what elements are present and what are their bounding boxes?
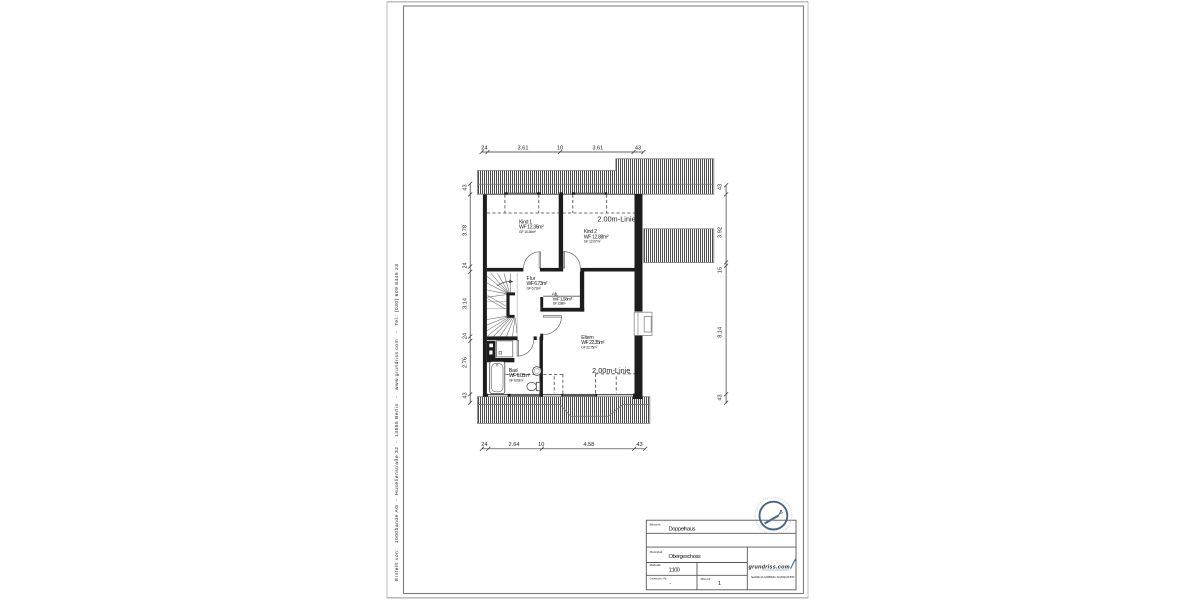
svg-text:GF 12.07m²: GF 12.07m² bbox=[584, 240, 602, 244]
svg-text:3.14: 3.14 bbox=[462, 298, 468, 309]
svg-text:3.92: 3.92 bbox=[717, 227, 723, 238]
svg-text:10: 10 bbox=[538, 442, 544, 448]
svg-text:43: 43 bbox=[462, 184, 468, 190]
svg-text:4.58: 4.58 bbox=[583, 442, 594, 448]
svg-text:43: 43 bbox=[717, 394, 723, 400]
svg-text:43: 43 bbox=[462, 392, 468, 398]
svg-text:3.61: 3.61 bbox=[518, 145, 529, 151]
svg-text:Erstellt von: 1000bande AG: Erstellt von: 1000bande AG - Huselienstr… bbox=[394, 264, 400, 581]
svg-text:43: 43 bbox=[635, 145, 641, 151]
svg-text:-: - bbox=[670, 581, 672, 587]
svg-text:43: 43 bbox=[636, 442, 642, 448]
svg-text:2.00m-Linie: 2.00m-Linie bbox=[597, 215, 635, 224]
svg-text:Maßstab: Maßstab bbox=[650, 563, 662, 567]
svg-text:Plan-Nr.: Plan-Nr. bbox=[701, 577, 712, 581]
svg-text:8.14: 8.14 bbox=[717, 327, 723, 338]
svg-text:10: 10 bbox=[557, 145, 563, 151]
svg-text:24: 24 bbox=[481, 442, 487, 448]
svg-text:2.00m-Linie: 2.00m-Linie bbox=[636, 369, 641, 392]
svg-text:Planinhalt: Planinhalt bbox=[650, 550, 663, 554]
svg-text:15: 15 bbox=[717, 267, 723, 273]
svg-text:2.64: 2.64 bbox=[509, 442, 520, 448]
svg-text:24: 24 bbox=[462, 333, 468, 339]
svg-text:GF 6.73m²: GF 6.73m² bbox=[527, 286, 542, 290]
svg-text:1:100: 1:100 bbox=[669, 568, 680, 574]
svg-text:GF 10.36m²: GF 10.36m² bbox=[519, 230, 537, 234]
svg-text:2.76: 2.76 bbox=[462, 357, 468, 368]
svg-text:24: 24 bbox=[481, 145, 487, 151]
svg-text:Bauvorh.: Bauvorh. bbox=[650, 523, 662, 527]
svg-text:2.00m-Linie: 2.00m-Linie bbox=[592, 366, 630, 375]
svg-text:GF 22.75m²: GF 22.75m² bbox=[581, 345, 598, 349]
svg-text:GF 1.58m²: GF 1.58m² bbox=[553, 301, 567, 305]
svg-text:Obergeschoss: Obergeschoss bbox=[669, 554, 701, 560]
svg-text:GF 6.03m²: GF 6.03m² bbox=[509, 378, 524, 382]
svg-text:3.61: 3.61 bbox=[592, 145, 603, 151]
svg-text:24: 24 bbox=[462, 262, 468, 268]
svg-text:1: 1 bbox=[718, 581, 721, 587]
svg-text:Seehofstr. 12 - 12345 Berlin -: Seehofstr. 12 - 12345 Berlin - Tel. (030… bbox=[751, 576, 795, 579]
svg-text:Doppelhaus: Doppelhaus bbox=[669, 526, 696, 532]
svg-text:43: 43 bbox=[717, 184, 723, 190]
svg-text:3.78: 3.78 bbox=[462, 225, 468, 236]
svg-text:Gezeichn.-Nr.: Gezeichn.-Nr. bbox=[650, 576, 668, 580]
svg-text:Ab.: Ab. bbox=[552, 291, 559, 297]
svg-text:e: e bbox=[635, 215, 639, 224]
